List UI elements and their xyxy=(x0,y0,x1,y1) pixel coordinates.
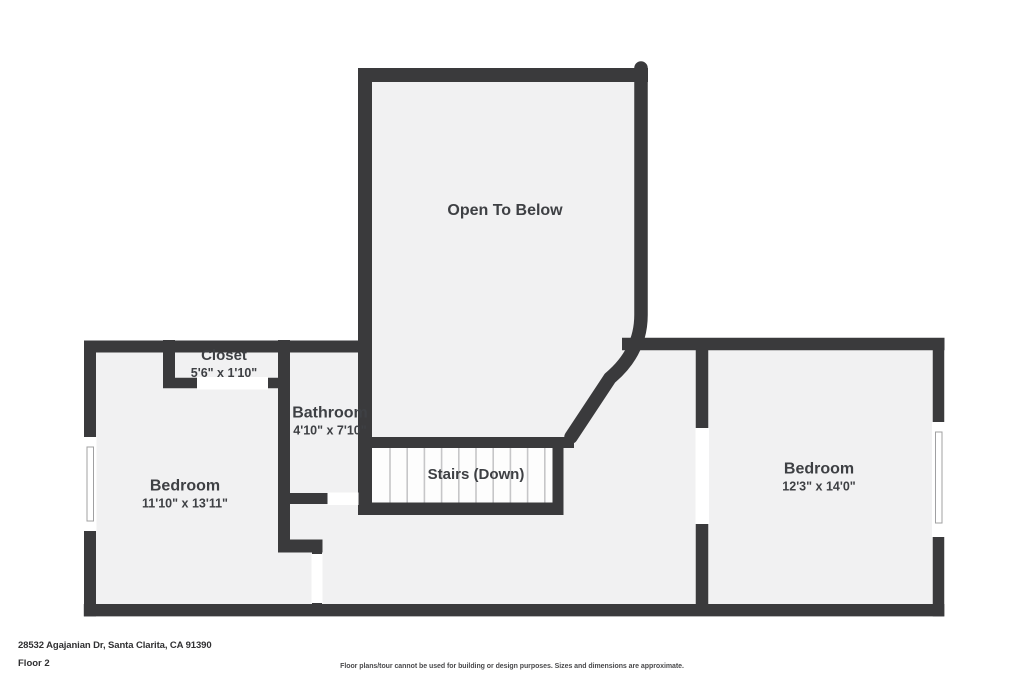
bedroom-right-door-opening xyxy=(696,428,710,524)
room-dimensions: 5'6" x 1'10" xyxy=(191,366,257,380)
open-to-below-label: Open To Below xyxy=(447,202,562,220)
bedroom-left-label: Bedroom 11'10" x 13'11" xyxy=(142,477,228,510)
bathroom-label: Bathroom 4'10" x 7'10" xyxy=(292,404,368,437)
floor-plan-page: Open To Below Closet 5'6" x 1'10" Bathro… xyxy=(0,0,1024,683)
room-name: Open To Below xyxy=(447,202,562,220)
bedroom-right-label: Bedroom 12'3" x 14'0" xyxy=(782,460,855,493)
floor-plan-drawing xyxy=(0,0,1024,683)
window-left xyxy=(84,437,97,531)
address-text: 28532 Agajanian Dr, Santa Clarita, CA 91… xyxy=(18,640,212,651)
stairs-label: Stairs (Down) xyxy=(428,467,525,484)
bedroom-left-door-opening xyxy=(312,554,323,603)
room-name: Bedroom xyxy=(142,477,228,495)
window-right xyxy=(932,422,945,537)
room-dimensions: 12'3" x 14'0" xyxy=(782,480,855,494)
room-name: Closet xyxy=(191,348,257,365)
room-name: Bathroom xyxy=(292,404,368,422)
disclaimer-text: Floor plans/tour cannot be used for buil… xyxy=(0,663,1024,670)
bathroom-door-opening xyxy=(328,493,359,506)
closet-label: Closet 5'6" x 1'10" xyxy=(191,348,257,380)
room-name: Stairs (Down) xyxy=(428,467,525,484)
room-dimensions: 4'10" x 7'10" xyxy=(292,424,368,438)
room-dimensions: 11'10" x 13'11" xyxy=(142,497,228,511)
room-name: Bedroom xyxy=(782,460,855,478)
